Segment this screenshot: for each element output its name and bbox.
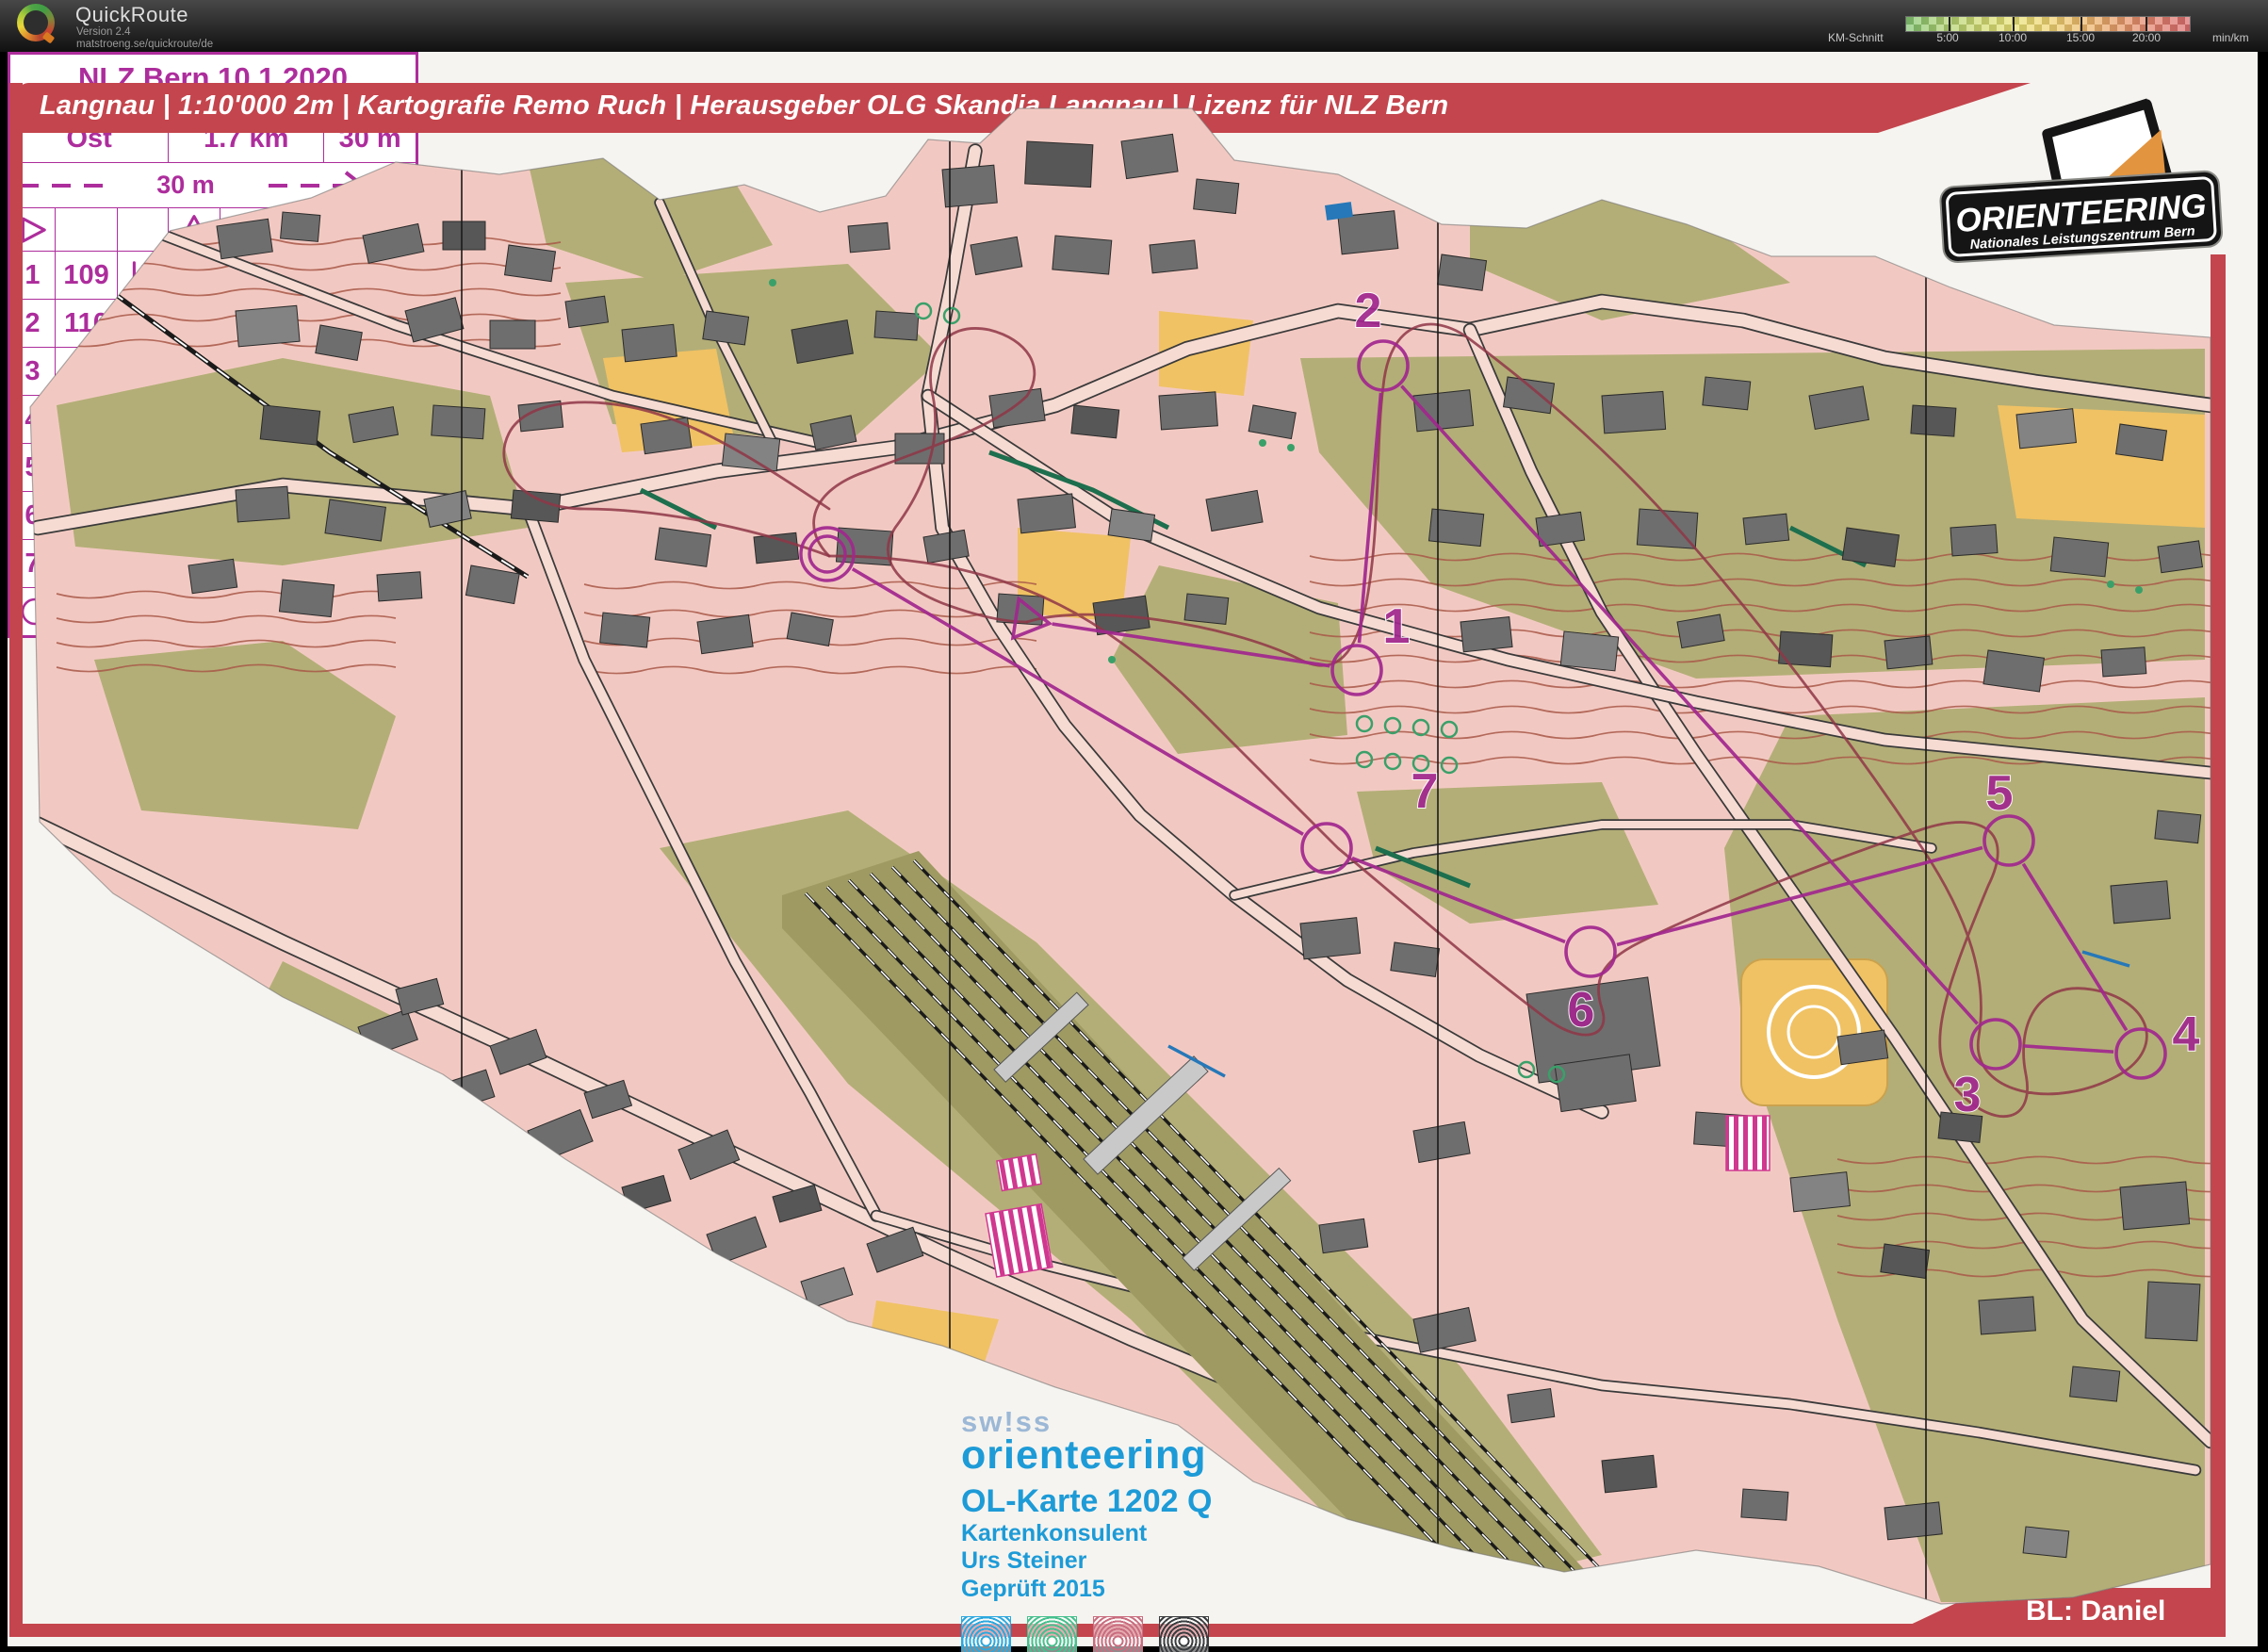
corner-ne-dot-icon bbox=[333, 450, 367, 484]
swiss-orienteering-brand-bottom: orienteering bbox=[961, 1435, 1338, 1476]
diamond-icon bbox=[177, 354, 211, 388]
map-title: Langnau | 1:10'000 2m | Kartografie Remo… bbox=[40, 90, 1448, 122]
symbol-cell bbox=[169, 444, 220, 492]
control-code: 129 bbox=[55, 444, 117, 492]
pace-color-scale bbox=[1905, 16, 2191, 32]
scanned-map-page: Langnau | 1:10'000 2m | Kartografie Remo… bbox=[8, 52, 2258, 1646]
scale-tick bbox=[2013, 17, 2015, 31]
print-color-swatches bbox=[961, 1616, 1338, 1652]
scale-tick-label: 15:00 bbox=[2066, 31, 2095, 44]
tree-icon bbox=[177, 547, 211, 581]
flower-icon bbox=[229, 213, 263, 247]
map-number: OL-Karte 1202 Q bbox=[961, 1483, 1338, 1520]
symbol-cell bbox=[376, 444, 417, 492]
symbol-cell bbox=[220, 300, 272, 348]
color-swatch bbox=[1159, 1616, 1209, 1652]
symbol-cell bbox=[220, 252, 272, 300]
scale-tick-label: 5:00 bbox=[1936, 31, 1958, 44]
footer-banner: BL: Daniel bbox=[1885, 1588, 2226, 1637]
control-row: 4131 bbox=[9, 396, 417, 444]
fence-icon bbox=[126, 402, 160, 436]
scale-tick bbox=[2146, 17, 2147, 31]
symbol-cell bbox=[169, 540, 220, 588]
north-emblem bbox=[83, 644, 234, 804]
symbol-cell bbox=[272, 540, 324, 588]
credit-line: Urs Steiner bbox=[961, 1547, 1338, 1576]
control-code: 131 bbox=[55, 396, 117, 444]
control-row: 3111 bbox=[9, 348, 417, 396]
symbol-cell bbox=[324, 348, 376, 396]
symbol-cell bbox=[376, 348, 417, 396]
finish-distance: 80 m bbox=[182, 597, 240, 627]
symbol-cell bbox=[324, 252, 376, 300]
pace-scale-label: KM-Schnitt bbox=[1828, 31, 1884, 44]
symbol-cell bbox=[169, 396, 220, 444]
tree-icon bbox=[177, 213, 211, 247]
symbol-cell bbox=[272, 348, 324, 396]
dotted-line-icon bbox=[177, 306, 211, 340]
map-credits: sw!ss orienteering OL-Karte 1202 Q Karte… bbox=[961, 1409, 1338, 1652]
t-left-icon bbox=[333, 306, 367, 340]
color-swatch bbox=[1093, 1616, 1143, 1652]
start-distance: 30 m bbox=[156, 171, 215, 200]
pace-scale-unit: min/km bbox=[2212, 31, 2249, 44]
orienteering-logo: ORIENTEERING Nationales Leistungszentrum… bbox=[1932, 81, 2226, 268]
symbol-cell bbox=[169, 348, 220, 396]
stairs-icon bbox=[177, 258, 211, 292]
credit-line: Geprüft 2015 bbox=[961, 1576, 1338, 1604]
control-row: 7114 bbox=[9, 540, 417, 588]
symbol-header-cell bbox=[220, 208, 272, 252]
circle-dot-icon bbox=[333, 402, 367, 436]
symbol-cell bbox=[169, 300, 220, 348]
pi-icon bbox=[177, 450, 211, 484]
symbol-header-cell bbox=[55, 208, 117, 252]
symbol-cell bbox=[118, 252, 169, 300]
t-top-icon bbox=[333, 499, 367, 532]
app-header: QuickRoute Version 2.4 matstroeng.se/qui… bbox=[0, 0, 2268, 52]
tree-icon bbox=[177, 402, 211, 436]
scale-tick-label: 20:00 bbox=[2132, 31, 2161, 44]
symbol-cell bbox=[220, 492, 272, 540]
quickroute-logo-tail bbox=[42, 31, 56, 43]
control-row: 1109 bbox=[9, 252, 417, 300]
dots-icon bbox=[229, 354, 263, 388]
control-row: 6112 bbox=[9, 492, 417, 540]
symbol-header-cell bbox=[118, 208, 169, 252]
circle-dot-icon bbox=[333, 213, 367, 247]
symbol-cell bbox=[118, 396, 169, 444]
app-url: matstroeng.se/quickroute/de bbox=[76, 39, 213, 50]
control-row: 5129 bbox=[9, 444, 417, 492]
symbol-header-cell bbox=[324, 208, 376, 252]
symbol-cell bbox=[376, 396, 417, 444]
symbol-cell bbox=[118, 444, 169, 492]
fence-icon bbox=[126, 258, 160, 292]
control-code: 112 bbox=[55, 492, 117, 540]
control-code: 110 bbox=[55, 300, 117, 348]
symbol-cell bbox=[376, 540, 417, 588]
symbol-cell bbox=[272, 396, 324, 444]
symbol-cell bbox=[118, 300, 169, 348]
symbol-cell bbox=[169, 252, 220, 300]
map-finish-icon bbox=[329, 593, 408, 630]
symbol-header-cell bbox=[272, 208, 324, 252]
symbol-cell bbox=[376, 300, 417, 348]
symbol-cell bbox=[324, 492, 376, 540]
symbol-cell bbox=[324, 300, 376, 348]
flower-icon bbox=[229, 547, 263, 581]
control-code: 111 bbox=[55, 348, 117, 396]
color-swatch bbox=[1027, 1616, 1077, 1652]
arrow-ne-icon bbox=[126, 547, 160, 581]
pen-circle-icon bbox=[333, 547, 367, 581]
corner-dot-icon bbox=[333, 354, 367, 388]
symbol-cell bbox=[324, 396, 376, 444]
symbol-cell bbox=[118, 492, 169, 540]
map-start-icon bbox=[18, 593, 93, 630]
fence-icon bbox=[126, 499, 160, 532]
symbol-cell bbox=[272, 444, 324, 492]
symbol-cell bbox=[324, 540, 376, 588]
control-description-sheet: NLZ Bern 10.1.2020Ost1.7 km30 m30 m11092… bbox=[8, 52, 418, 638]
control-row: 2110 bbox=[9, 300, 417, 348]
symbol-cell bbox=[169, 492, 220, 540]
symbol-cell bbox=[324, 444, 376, 492]
symbol-header-cell bbox=[169, 208, 220, 252]
symbol-cell bbox=[272, 300, 324, 348]
symbol-cell bbox=[220, 348, 272, 396]
swiss-orienteering-brand-top: sw!ss bbox=[961, 1409, 1338, 1435]
symbol-cell bbox=[376, 492, 417, 540]
control-code: 109 bbox=[55, 252, 117, 300]
symbol-cell bbox=[118, 540, 169, 588]
t-top-icon bbox=[333, 258, 367, 292]
start-distance-row: 30 m bbox=[9, 163, 417, 208]
control-code: 114 bbox=[55, 540, 117, 588]
app-version: Version 2.4 bbox=[76, 26, 131, 38]
footer-label: BL: Daniel bbox=[2026, 1595, 2165, 1627]
symbol-header-cell bbox=[376, 208, 417, 252]
color-swatch bbox=[961, 1616, 1011, 1652]
frame-right bbox=[2211, 254, 2226, 1637]
map-title-bar: Langnau | 1:10'000 2m | Kartografie Remo… bbox=[19, 83, 2031, 133]
scale-tick-label: 10:00 bbox=[1999, 31, 2027, 44]
app-title: QuickRoute bbox=[75, 3, 188, 27]
symbol-cell bbox=[272, 492, 324, 540]
symbol-cell bbox=[220, 444, 272, 492]
scale-tick bbox=[1949, 17, 1950, 31]
frame-left bbox=[9, 83, 23, 1637]
dotted-line-icon bbox=[177, 499, 211, 532]
flower-icon bbox=[229, 402, 263, 436]
symbol-cell bbox=[118, 348, 169, 396]
symbol-cell bbox=[376, 252, 417, 300]
finish-distance-row: 80 m bbox=[9, 588, 417, 637]
symbol-cell bbox=[272, 252, 324, 300]
symbol-cell bbox=[220, 396, 272, 444]
credit-line: Kartenkonsulent bbox=[961, 1520, 1338, 1548]
symbol-cell bbox=[220, 540, 272, 588]
scale-tick bbox=[2080, 17, 2082, 31]
